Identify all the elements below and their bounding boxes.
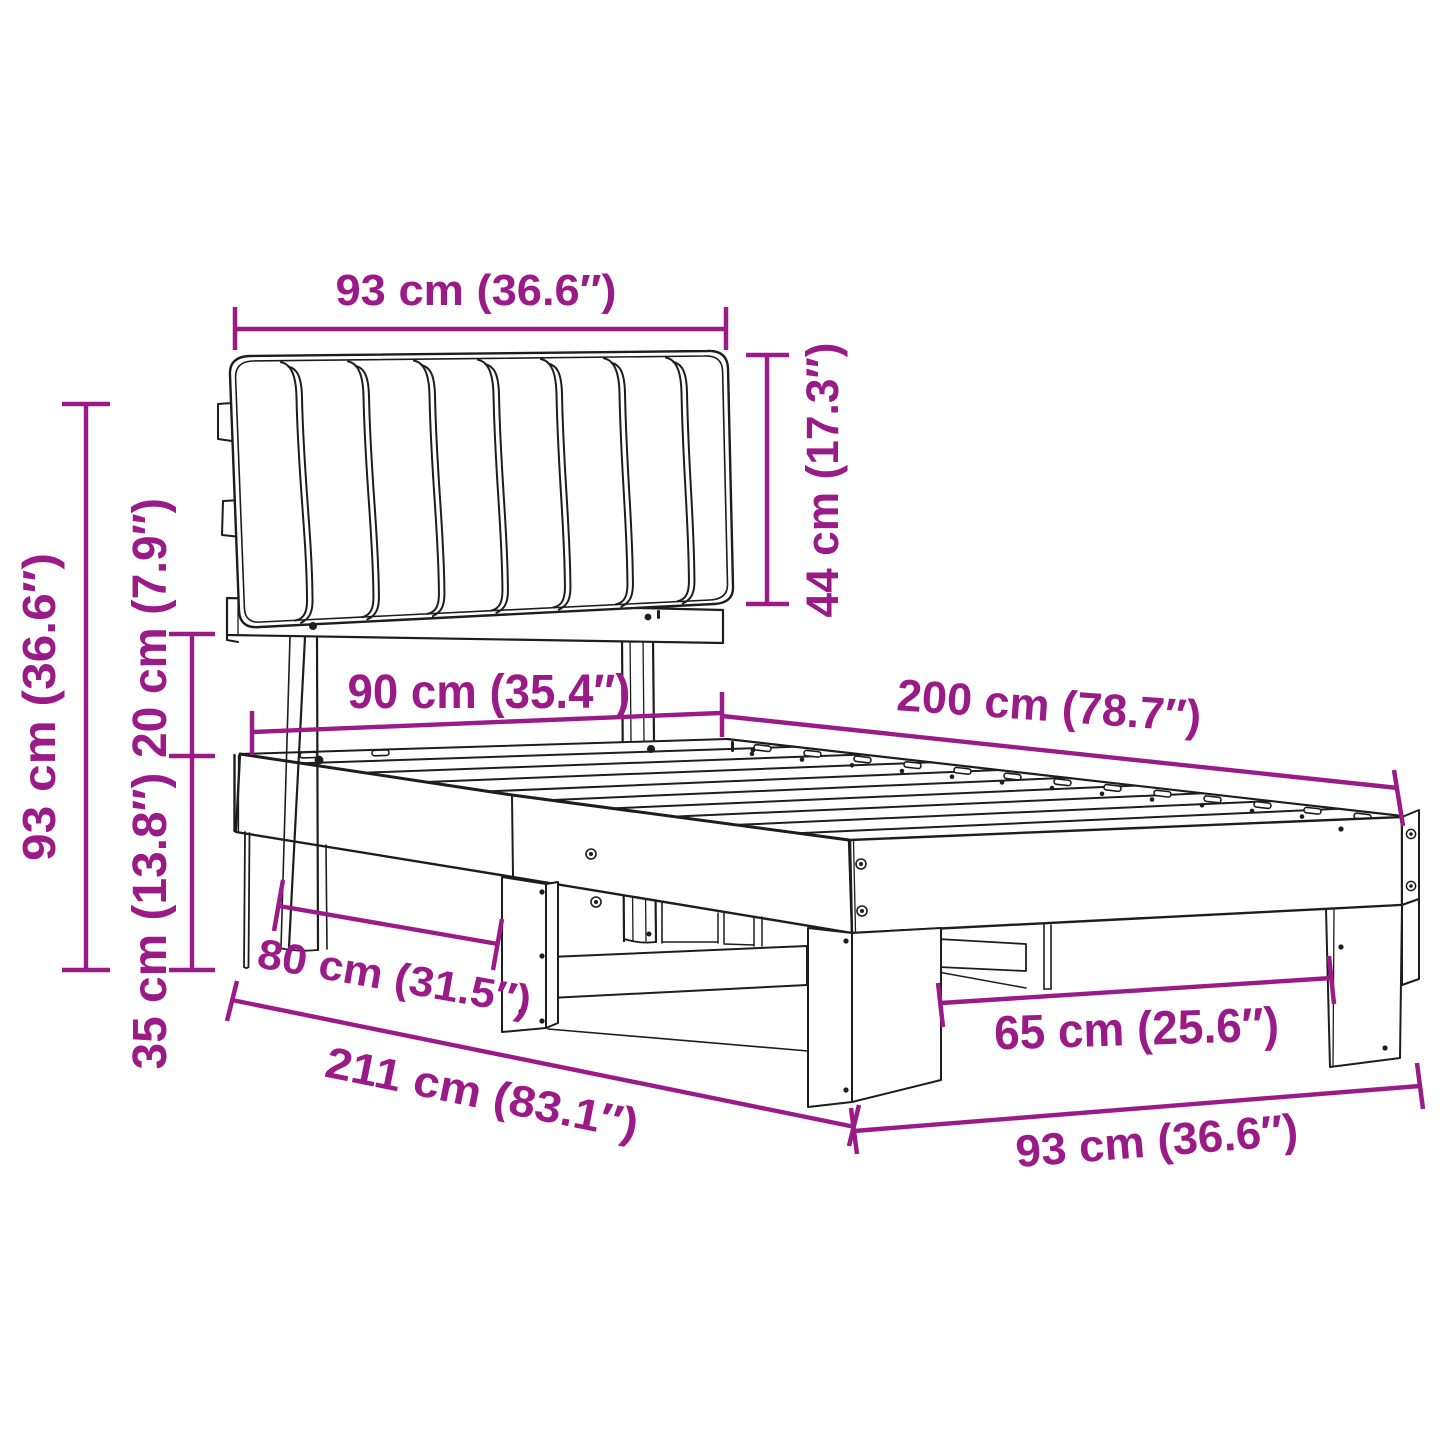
svg-text:44 cm (17.3″): 44 cm (17.3″): [797, 343, 848, 618]
svg-text:93 cm (36.6″): 93 cm (36.6″): [13, 553, 65, 861]
svg-text:65 cm (25.6″): 65 cm (25.6″): [993, 999, 1280, 1061]
svg-text:90 cm (35.4″): 90 cm (35.4″): [348, 666, 631, 719]
svg-text:200 cm (78.7″): 200 cm (78.7″): [895, 669, 1203, 742]
svg-text:20 cm (7.9″): 20 cm (7.9″): [124, 498, 177, 758]
svg-text:93 cm (36.6″): 93 cm (36.6″): [336, 266, 617, 315]
svg-text:211 cm (83.1″): 211 cm (83.1″): [321, 1038, 642, 1149]
svg-text:35 cm (13.8″): 35 cm (13.8″): [124, 773, 177, 1070]
